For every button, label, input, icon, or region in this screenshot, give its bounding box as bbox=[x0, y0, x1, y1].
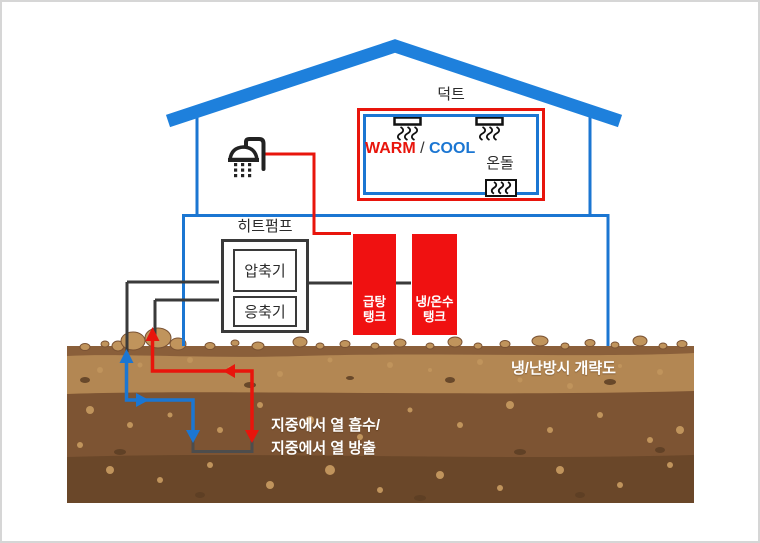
hot-water-supply-tank: 급탕 탱크 bbox=[353, 234, 396, 335]
cool-text: COOL bbox=[429, 140, 475, 157]
cold-hot-water-tank: 냉/온수 탱크 bbox=[412, 234, 457, 335]
ondol-label: 온돌 bbox=[478, 156, 522, 173]
compressor-box: 압축기 bbox=[233, 249, 297, 292]
duct-label: 덕트 bbox=[357, 87, 545, 104]
warm-cool-label: WARM / COOL bbox=[365, 140, 475, 158]
tank-label-line: 급탕 bbox=[363, 295, 386, 311]
slash-text: / bbox=[416, 140, 429, 157]
tank-label-line: 냉/온수 bbox=[416, 295, 454, 311]
condenser-box: 응축기 bbox=[233, 296, 297, 327]
ground-heat-note-line1: 지중에서 열 흡수/ bbox=[271, 414, 380, 435]
heat-pump-label: 히트펌프 bbox=[221, 219, 309, 236]
tank-label-line: 탱크 bbox=[363, 310, 386, 326]
tank-label-line: 탱크 bbox=[423, 310, 446, 326]
floor-heater-icon bbox=[485, 179, 517, 197]
schematic-caption: 냉/난방시 개략도 bbox=[511, 357, 616, 378]
shower-icon bbox=[228, 139, 264, 177]
schematic-diagram: 덕트 WARM / COOL 온돌 히트펌프 압축기 응축기 급탕 탱크 냉/온… bbox=[0, 0, 760, 543]
ground-heat-note-line2: 지중에서 열 방출 bbox=[271, 437, 376, 458]
warm-text: WARM bbox=[365, 140, 416, 157]
